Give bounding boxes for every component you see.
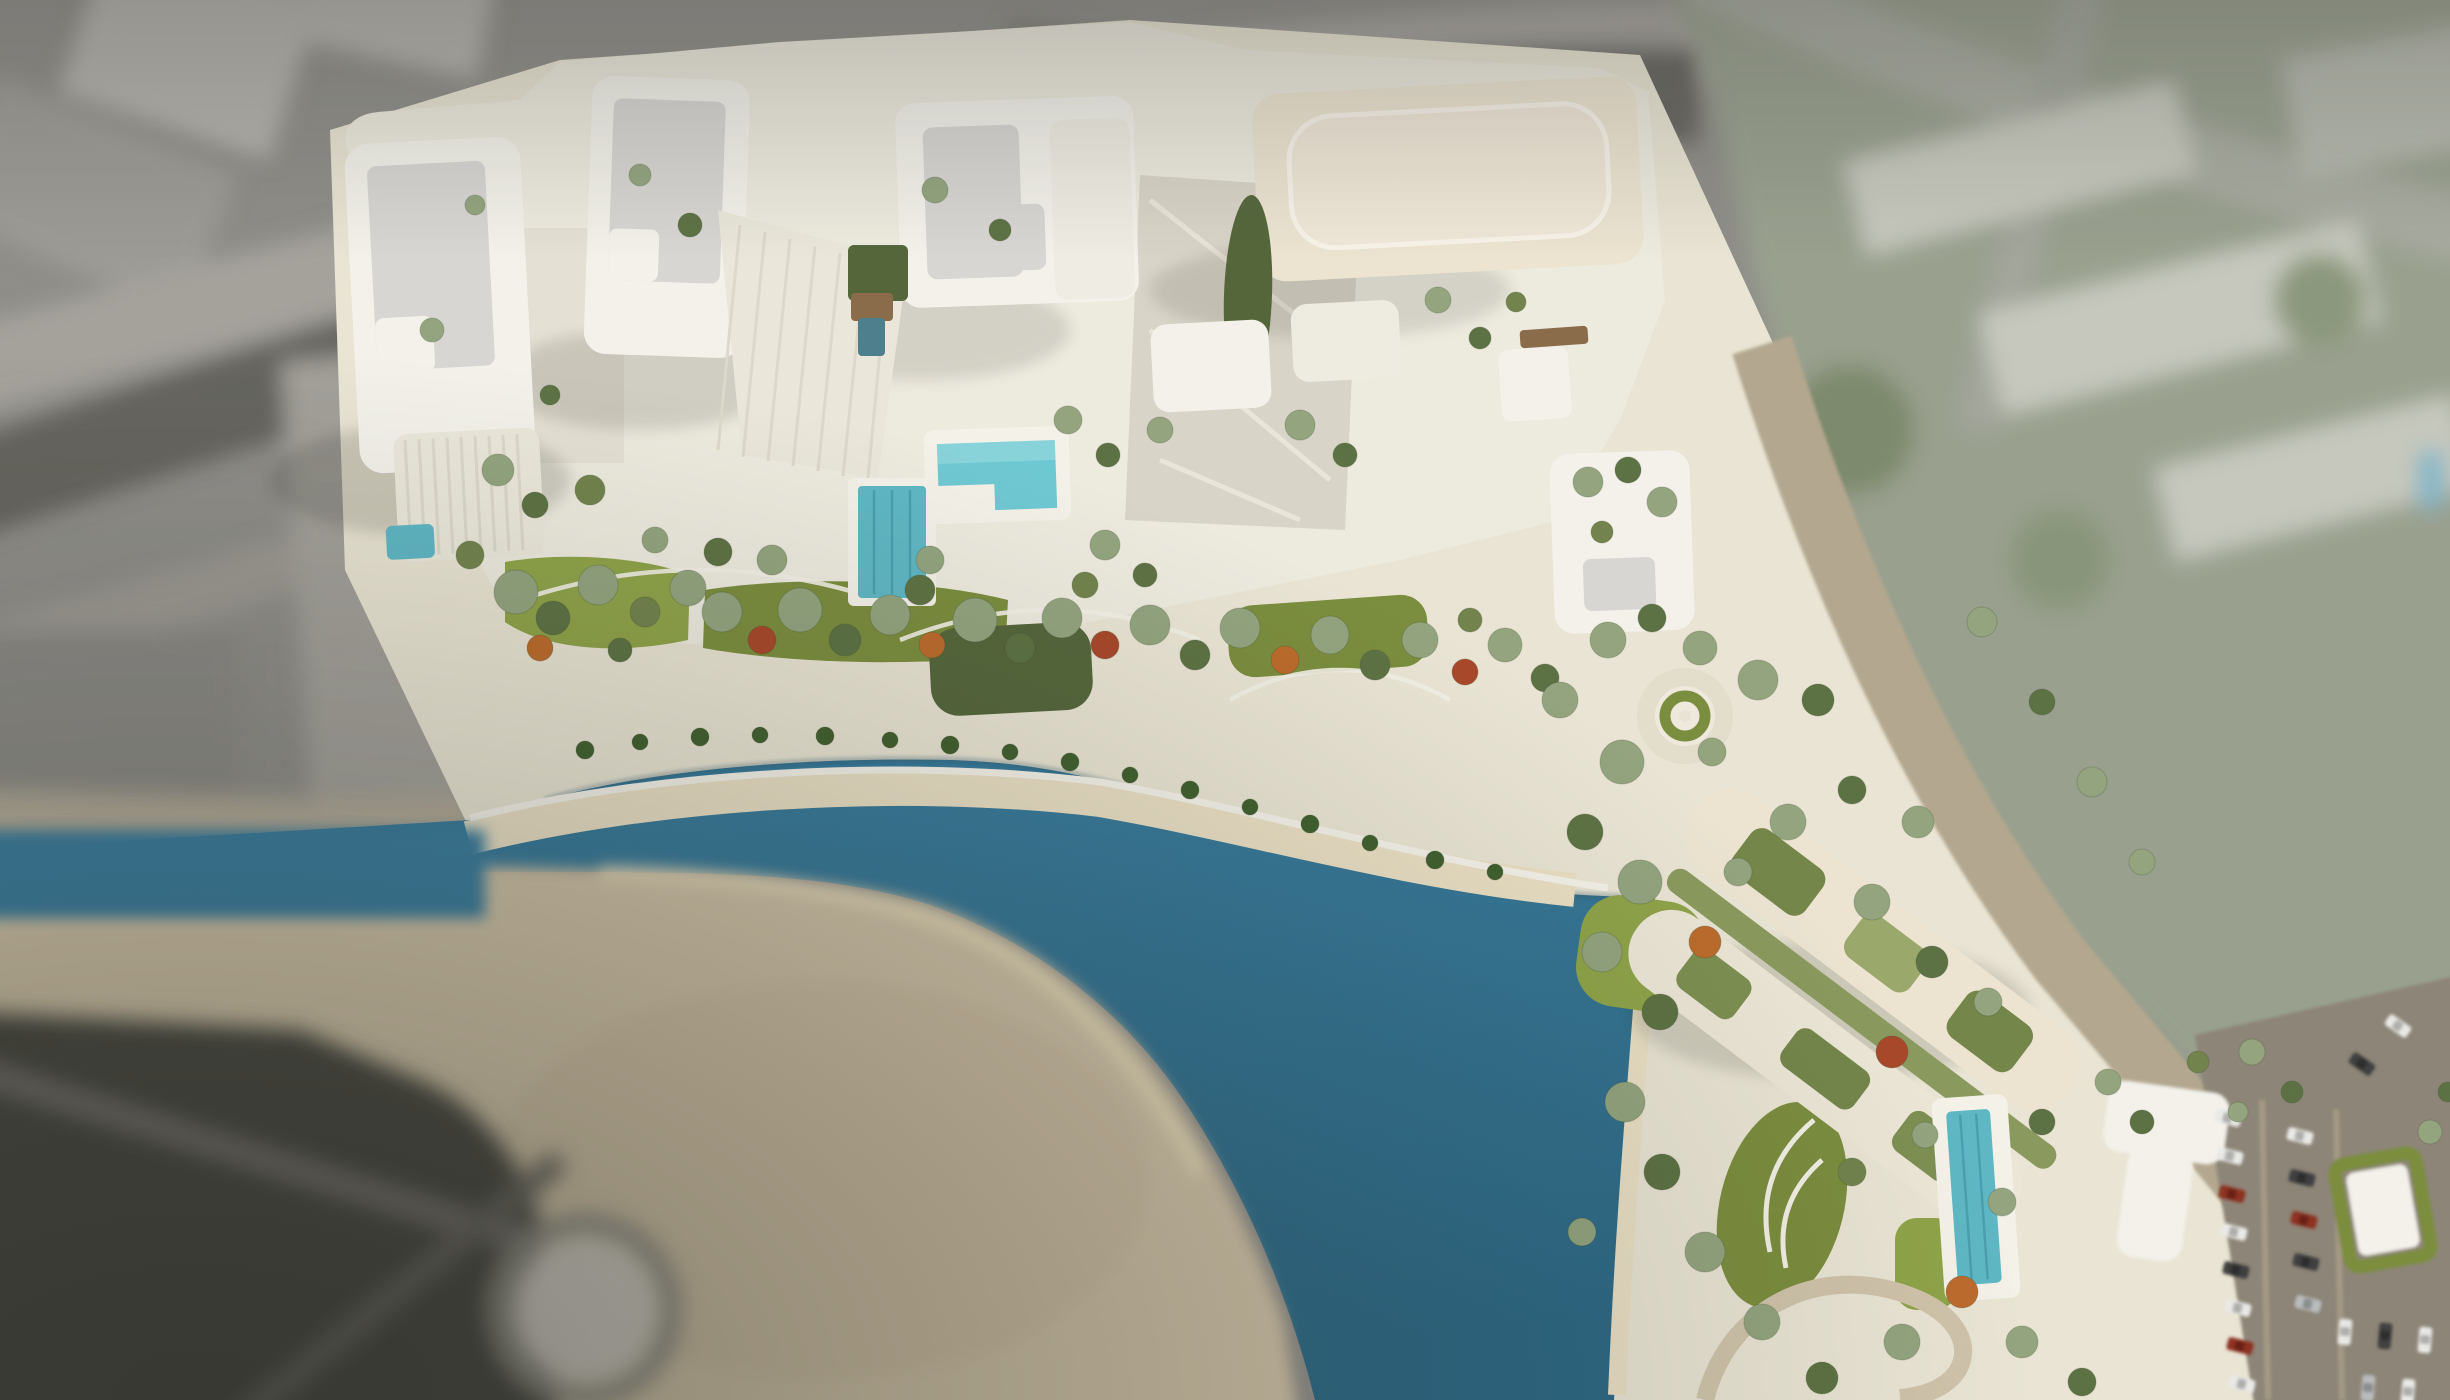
aerial-render-canvas (0, 0, 2450, 1400)
vignette-top (0, 0, 2450, 260)
aerial-render-svg (0, 0, 2450, 1400)
